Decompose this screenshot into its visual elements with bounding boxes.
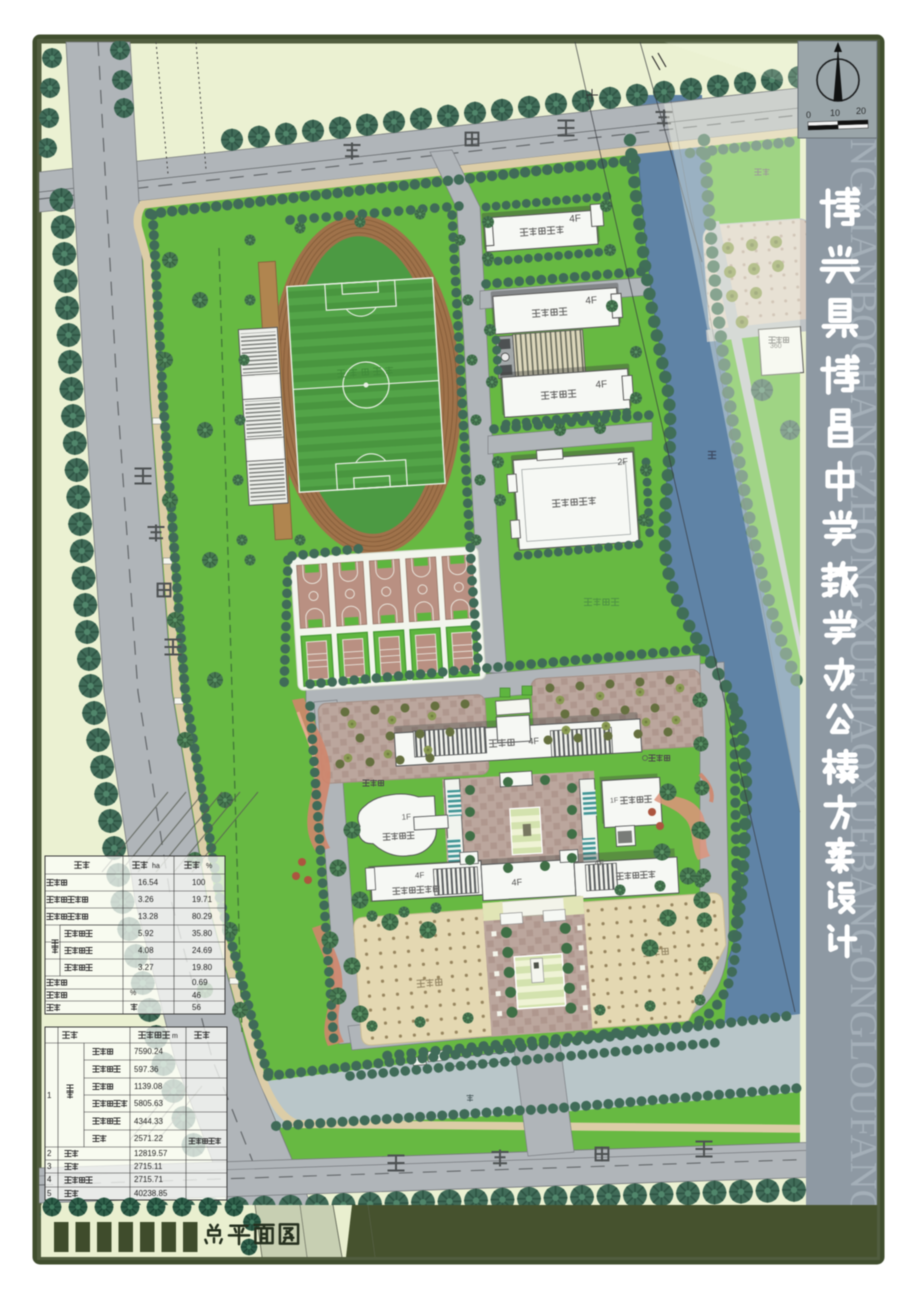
svg-text:0: 0	[806, 110, 811, 120]
svg-text:13.28: 13.28	[138, 912, 159, 921]
svg-text:3.26: 3.26	[138, 895, 154, 904]
svg-text:2: 2	[47, 1149, 52, 1158]
svg-text:24.69: 24.69	[192, 946, 213, 955]
svg-text:100: 100	[192, 878, 206, 887]
svg-text:10: 10	[830, 108, 840, 118]
svg-text:40238.85: 40238.85	[134, 1189, 168, 1198]
svg-text:2715.71: 2715.71	[134, 1175, 163, 1184]
svg-text:%: %	[130, 990, 136, 997]
svg-text:19.80: 19.80	[192, 963, 213, 972]
svg-text:12819.57: 12819.57	[134, 1149, 168, 1158]
svg-text:m: m	[172, 1033, 178, 1040]
svg-text:5805.63: 5805.63	[134, 1099, 163, 1108]
svg-text:ha: ha	[152, 863, 160, 870]
svg-text:5: 5	[47, 1189, 52, 1198]
svg-text:3.27: 3.27	[138, 963, 154, 972]
svg-text:0.69: 0.69	[192, 978, 208, 987]
svg-text:46: 46	[192, 991, 201, 1000]
svg-text:597.36: 597.36	[134, 1065, 159, 1074]
svg-text:%: %	[206, 863, 212, 870]
svg-text:4.08: 4.08	[138, 946, 154, 955]
svg-text:35.80: 35.80	[192, 929, 213, 938]
svg-text:16.54: 16.54	[138, 878, 159, 887]
svg-text:80.29: 80.29	[192, 912, 213, 921]
svg-text:2571.22: 2571.22	[134, 1134, 163, 1143]
svg-text:1: 1	[47, 1091, 52, 1100]
svg-text:56: 56	[192, 1003, 201, 1012]
svg-text:4344.33: 4344.33	[134, 1117, 163, 1126]
svg-text:7590.24: 7590.24	[134, 1047, 163, 1056]
svg-text:20: 20	[856, 106, 866, 116]
svg-text:19.71: 19.71	[192, 895, 213, 904]
svg-text:3: 3	[47, 1162, 52, 1171]
svg-text:5.92: 5.92	[138, 929, 154, 938]
svg-text:4: 4	[47, 1175, 52, 1184]
svg-text:1139.08: 1139.08	[134, 1082, 163, 1091]
svg-text:2715.11: 2715.11	[134, 1162, 163, 1171]
